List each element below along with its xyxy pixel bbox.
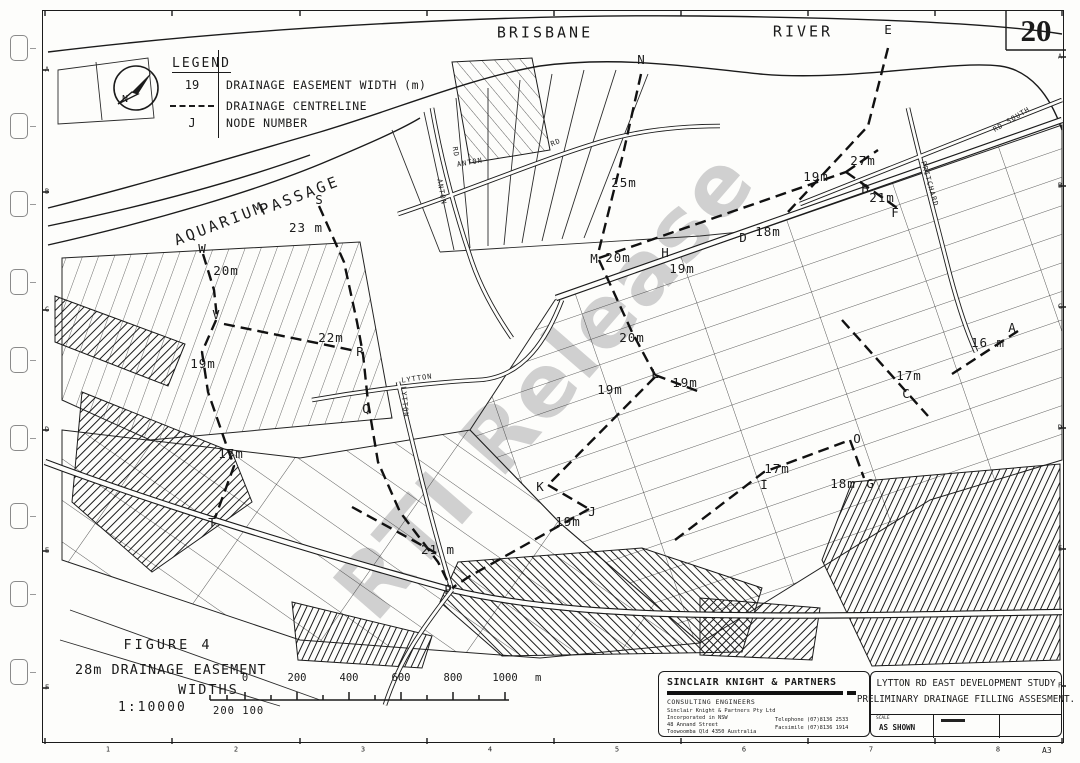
node-label-O: O: [853, 433, 861, 446]
consultant-address: Sinclair Knight & Partners Pty Ltd Incor…: [667, 708, 775, 737]
node-label-V: V: [212, 309, 220, 322]
node-label-N: N: [637, 54, 645, 67]
node-label-M: M: [590, 253, 598, 266]
address-line: Sinclair Knight & Partners Pty Ltd: [667, 708, 775, 715]
measure-label: 22m: [318, 332, 344, 345]
project-divider-v2: [999, 714, 1000, 738]
grid-row-left-A: A: [45, 67, 49, 74]
scale-bar: m 200 100 02004006008001000: [205, 672, 565, 722]
scale-bar-sub-labels: 200 100: [213, 705, 264, 717]
grid-col-6: 6: [742, 747, 746, 754]
consultant-name: SINCLAIR KNIGHT & PARTNERS: [667, 677, 837, 688]
node-label-I: I: [760, 479, 768, 492]
grid-row-right-E: E: [1058, 546, 1062, 553]
measure-label: 17m: [218, 448, 244, 461]
measure-label: 20m: [619, 332, 645, 345]
binder-hole: [10, 659, 28, 685]
grid-row-right-B: B: [1058, 183, 1062, 190]
scale-bar-label-200: 200: [288, 672, 307, 684]
legend-label-width: DRAINAGE EASEMENT WIDTH (m): [226, 78, 426, 92]
sheet-size: A3: [1042, 746, 1052, 755]
node-label-A: A: [1008, 322, 1016, 335]
grid-row-right-D: D: [1058, 425, 1062, 432]
page-number: 20: [1021, 13, 1052, 49]
project-title-block: LYTTON RD EAST DEVELOPMENT STUDY PRELIMI…: [870, 671, 1062, 737]
measure-label: 23 m: [289, 222, 323, 235]
grid-row-right-A: A: [1058, 54, 1062, 61]
grid-row-right-F: F: [1058, 683, 1062, 690]
place-label: BRISBANE: [497, 26, 593, 41]
grid-row-left-D: D: [45, 427, 49, 434]
grid-col-7: 7: [869, 747, 873, 754]
field-mark: [941, 719, 965, 722]
legend-symbol-node: J: [188, 116, 195, 130]
scale-field-label: SCALE: [876, 716, 890, 721]
drawing-sheet: RTI Release: [0, 0, 1080, 763]
consultant-contacts: Telephone (07)8136 2533 Facsimile (07)81…: [775, 717, 848, 733]
address-line: 48 Annand Street: [667, 722, 775, 729]
grid-row-left-B: B: [45, 189, 49, 196]
legend-title: LEGEND: [172, 56, 231, 73]
consultant-rule-end: [847, 691, 856, 695]
edge-mark: [30, 516, 36, 517]
edge-mark: [30, 672, 36, 673]
measure-label: 17m: [896, 370, 922, 383]
telephone: Telephone (07)8136 2533: [775, 717, 848, 725]
legend-label-node: NODE NUMBER: [226, 116, 308, 130]
grid-col-3: 3: [361, 747, 365, 754]
measure-label: 25m: [611, 177, 637, 190]
project-title-1: LYTTON RD EAST DEVELOPMENT STUDY: [876, 678, 1055, 689]
node-label-P: P: [444, 584, 452, 597]
grid-row-left-F: F: [45, 685, 49, 692]
measure-label: 17m: [764, 463, 790, 476]
node-label-J: J: [588, 506, 596, 519]
project-divider-v1: [933, 714, 934, 738]
binder-hole: [10, 503, 28, 529]
address-line: Incorporated in NSW: [667, 715, 775, 722]
consultant-title-block: SINCLAIR KNIGHT & PARTNERS CONSULTING EN…: [658, 671, 870, 737]
binder-hole: [10, 425, 28, 451]
measure-label: 27m: [850, 155, 876, 168]
edge-mark: [30, 594, 36, 595]
grid-row-left-E: E: [45, 548, 49, 555]
edge-mark: [30, 360, 36, 361]
node-label-D: D: [739, 232, 747, 245]
edge-mark: [30, 126, 36, 127]
facsimile: Facsimile (07)8136 1914: [775, 725, 848, 733]
road-label: RD: [451, 146, 460, 157]
legend: N LEGEND 19 DRAINAGE EASEMENT WIDTH (m) …: [100, 48, 430, 142]
node-label-T: T: [208, 517, 216, 530]
grid-row-left-C: C: [45, 307, 49, 314]
measure-label: 18m: [830, 478, 856, 491]
grid-col-1: 1: [106, 747, 110, 754]
binder-hole: [10, 581, 28, 607]
measure-label: 19m: [190, 358, 216, 371]
legend-label-centreline: DRAINAGE CENTRELINE: [226, 99, 367, 113]
measure-label: 16 m: [971, 337, 1005, 350]
binder-hole: [10, 269, 28, 295]
edge-mark: [30, 48, 36, 49]
node-label-S: S: [315, 194, 323, 207]
grid-row-right-C: C: [1058, 304, 1062, 311]
scale-bar-unit: m: [535, 672, 541, 684]
measure-label: 19m: [669, 263, 695, 276]
node-label-E: E: [884, 24, 892, 37]
grid-col-8: 8: [996, 747, 1000, 754]
grid-col-5: 5: [615, 747, 619, 754]
node-label-W: W: [198, 243, 206, 256]
measure-label: 18m: [755, 226, 781, 239]
node-label-F: F: [891, 207, 899, 220]
node-label-C: C: [902, 388, 910, 401]
node-label-L: L: [651, 368, 659, 381]
measure-label: 19m: [672, 377, 698, 390]
figure-scale: 1:10000: [118, 700, 187, 715]
edge-mark: [30, 204, 36, 205]
node-label-H: H: [661, 247, 669, 260]
scale-bar-label-800: 800: [444, 672, 463, 684]
consultant-subtitle: CONSULTING ENGINEERS: [667, 698, 755, 706]
measure-label: 19m: [555, 516, 581, 529]
svg-text:N: N: [122, 94, 128, 105]
consultant-rule: [667, 691, 843, 695]
road-label: LYTTON: [399, 386, 409, 418]
legend-symbol-width: 19: [185, 78, 199, 92]
scale-field-value: AS SHOWN: [879, 723, 915, 732]
north-arrow-icon: N: [108, 60, 164, 116]
scale-bar-label-600: 600: [392, 672, 411, 684]
address-line: Toowoomba Qld 4350 Australia: [667, 729, 775, 736]
project-divider: [871, 714, 1061, 715]
figure-title: FIGURE 4: [123, 637, 212, 653]
node-label-K: K: [536, 481, 544, 494]
measure-label: 20m: [213, 265, 239, 278]
edge-mark: [30, 438, 36, 439]
node-label-R: R: [356, 346, 364, 359]
measure-label: 19m: [597, 384, 623, 397]
legend-symbol-centreline-icon: [170, 105, 214, 107]
node-label-Q: Q: [362, 403, 370, 416]
scale-bar-label-1000: 1000: [492, 672, 517, 684]
binder-hole: [10, 35, 28, 61]
binder-hole: [10, 191, 28, 217]
edge-mark: [30, 282, 36, 283]
place-label: RIVER: [773, 25, 833, 40]
measure-label: 19m: [803, 171, 829, 184]
node-label-G: G: [866, 478, 874, 491]
grid-col-4: 4: [488, 747, 492, 754]
node-label-B: B: [861, 183, 869, 196]
measure-label: 20m: [605, 252, 631, 265]
measure-label: 21m: [869, 192, 895, 205]
scale-bar-label-0: 0: [242, 672, 248, 684]
project-title-2: PRELIMINARY DRAINAGE FILLING ASSESMENT.: [857, 694, 1075, 705]
measure-label: 21 m: [421, 544, 455, 557]
scale-bar-label-400: 400: [340, 672, 359, 684]
binder-hole: [10, 113, 28, 139]
grid-col-2: 2: [234, 747, 238, 754]
binder-hole: [10, 347, 28, 373]
